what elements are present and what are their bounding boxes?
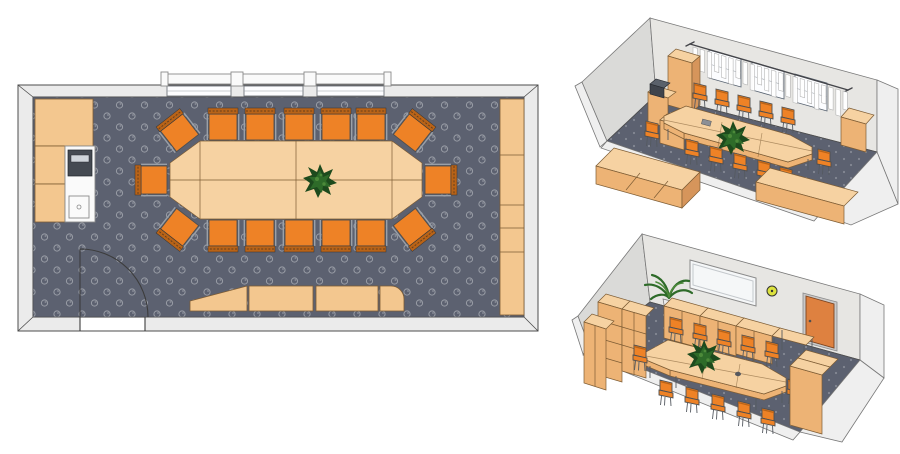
chair	[283, 220, 314, 252]
top-wall-windows	[161, 72, 391, 96]
chair	[135, 164, 167, 195]
curtain-pleat	[729, 57, 733, 84]
chair	[711, 394, 725, 420]
chair	[320, 220, 351, 252]
door-handle	[809, 320, 812, 323]
conference-table	[170, 141, 422, 219]
curtain-pleat	[764, 68, 768, 91]
chair	[207, 108, 238, 140]
chair	[355, 220, 386, 252]
curtain-pleat	[700, 49, 704, 72]
curtain-pleat	[743, 62, 747, 85]
cabinet	[35, 99, 93, 146]
cabinet	[35, 184, 65, 222]
chair	[737, 401, 751, 427]
curtain-pleat	[750, 64, 754, 91]
window-post	[384, 72, 391, 86]
curtain-pleat	[757, 66, 761, 85]
curtain-pleat	[714, 53, 718, 72]
sideboard	[249, 286, 313, 311]
curtain-pleat	[800, 78, 804, 97]
curtain-pleat	[814, 83, 818, 110]
perspective-view-bottom	[572, 234, 884, 442]
clock-center	[771, 290, 773, 292]
chair	[659, 380, 673, 406]
curtain-pleat	[822, 85, 826, 104]
room-planner-canvas	[0, 0, 900, 454]
sink	[69, 196, 89, 218]
floor-plan	[18, 72, 538, 331]
scene-svg	[0, 0, 900, 454]
curtain-pleat	[736, 60, 740, 79]
right-wall-cabinets	[500, 99, 524, 315]
perspective-view-top	[575, 18, 898, 225]
curtain-pleat	[829, 87, 833, 110]
curtain-pleat	[786, 74, 790, 97]
cabinet	[35, 146, 65, 184]
chair	[355, 108, 386, 140]
window-post	[304, 72, 316, 86]
curtain-pleat	[779, 72, 783, 91]
door-opening	[80, 318, 145, 330]
sideboard-round-end	[380, 286, 404, 311]
chair	[207, 220, 238, 252]
curtain-pleat	[722, 55, 726, 78]
chair	[244, 220, 275, 252]
chair	[320, 108, 351, 140]
window-post	[231, 72, 243, 86]
coffee-machine	[68, 150, 92, 176]
curtain-pleat	[707, 51, 711, 78]
curtain-pleat	[772, 70, 776, 97]
kitchenette	[35, 99, 95, 222]
table-object	[735, 372, 741, 376]
curtain-pleat	[793, 76, 797, 103]
chair	[244, 108, 275, 140]
curtain-pleat	[807, 81, 811, 104]
chair	[425, 164, 457, 195]
curtain-pleat	[843, 91, 847, 110]
chair	[685, 387, 699, 413]
chair	[283, 108, 314, 140]
appliance-panel	[71, 155, 89, 162]
window-post	[161, 72, 168, 86]
sideboard	[316, 286, 378, 311]
curtain-pleat	[836, 89, 840, 116]
